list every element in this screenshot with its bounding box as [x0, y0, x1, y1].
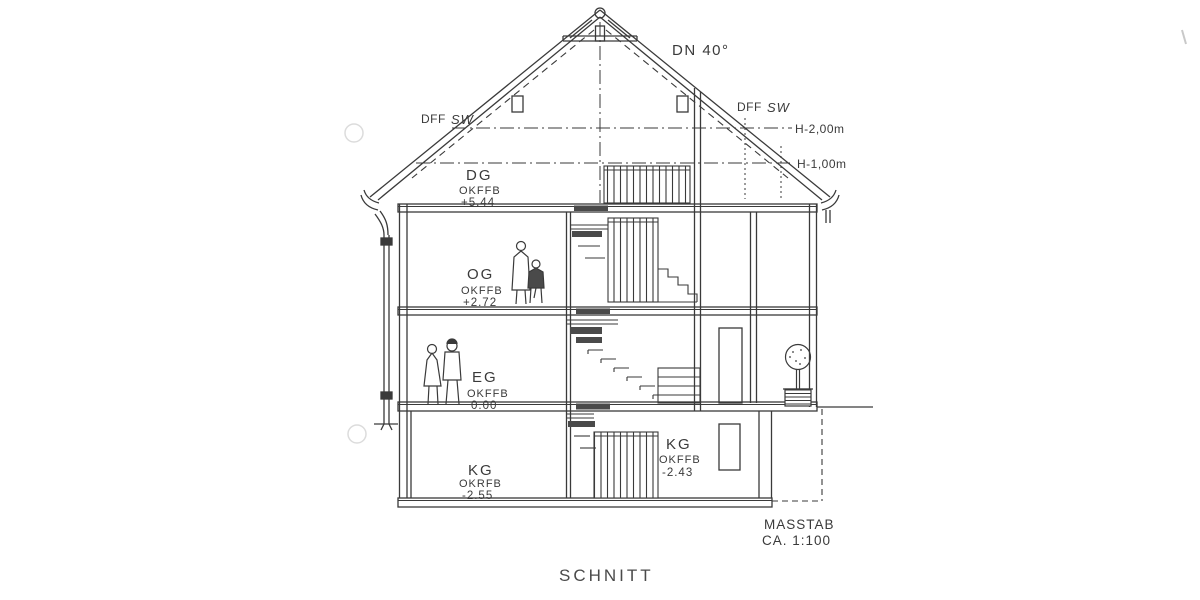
door-eg [719, 328, 742, 403]
height-lower-label: H-1,00m [797, 157, 847, 171]
height-upper-label: H-2,00m [795, 122, 845, 136]
architectural-section-sheet: DN 40° DFF SW DFF SW H-2,00m H-1,00m DG … [0, 0, 1200, 600]
eg-datum: OKFFB [467, 388, 509, 400]
level-label-kg: KG OKRFB -2.55 [459, 462, 502, 502]
purlin-left [512, 96, 523, 112]
window-kg [719, 424, 740, 470]
kg-stair-datum: OKFFB [659, 454, 701, 466]
section-drawing: DN 40° DFF SW DFF SW H-2,00m H-1,00m DG … [0, 0, 1200, 600]
dg-name: DG [466, 167, 493, 184]
kg-datum: OKRFB [459, 478, 502, 490]
tree [783, 345, 813, 407]
slab-kg [398, 498, 772, 507]
scale-note: MASSTAB CA. 1:100 [762, 517, 835, 548]
kg-name: KG [468, 462, 494, 479]
railing-og [608, 218, 658, 302]
steps-og [658, 269, 697, 302]
railing-kg [594, 432, 658, 498]
eg-name: EG [472, 369, 498, 386]
level-label-og: OG OKFFB +2.72 [461, 266, 503, 309]
tree-planter [785, 389, 811, 406]
figure-child-og [528, 260, 544, 303]
figure-woman-eg [424, 345, 441, 405]
figure-adult-og [512, 242, 530, 305]
level-label-kg-stair: KG OKFFB -2.43 [659, 436, 701, 479]
dg-datum: OKFFB [459, 185, 501, 197]
roof-pitch-label: DN 40° [672, 42, 730, 59]
steps-eg-mid [588, 350, 668, 399]
drawing-title: SCHNITT [559, 566, 654, 585]
figure-man-eg [443, 339, 461, 404]
purlin-right [677, 96, 688, 112]
kg-stair-value: -2.43 [662, 467, 693, 479]
kg-value: -2.55 [462, 490, 493, 502]
kg-stair-name: KG [666, 436, 692, 453]
scale-line2: CA. 1:100 [762, 533, 831, 548]
og-value: +2.72 [463, 297, 497, 309]
excavation-boundary [772, 409, 822, 501]
og-datum: OKFFB [461, 285, 503, 297]
dff-left-script: SW [451, 112, 475, 127]
dff-right-script: SW [767, 100, 791, 115]
og-name: OG [467, 266, 494, 283]
dff-left-label: DFF [421, 112, 446, 126]
eg-value: 0.00 [471, 400, 497, 412]
dg-value: +5.44 [461, 197, 495, 209]
scale-line1: MASSTAB [764, 517, 835, 532]
level-label-dg: DG OKFFB +5.44 [459, 167, 501, 209]
railing-dg [604, 166, 690, 203]
dff-right-label: DFF [737, 100, 762, 114]
